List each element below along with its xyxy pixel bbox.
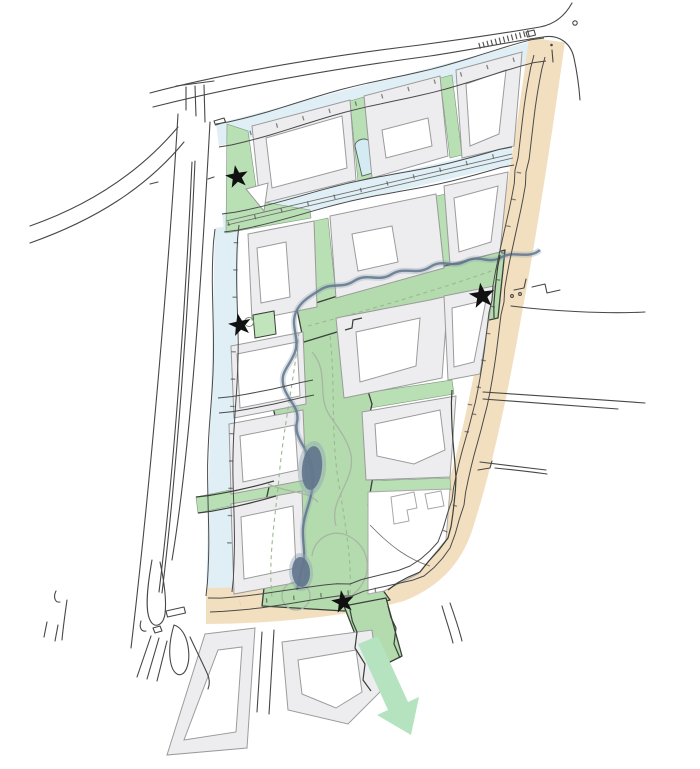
masterplan-map xyxy=(0,0,700,769)
road-diagonal-nw xyxy=(30,142,184,243)
stub-south xyxy=(450,603,462,641)
road-mark xyxy=(55,625,58,641)
road-mark xyxy=(208,177,214,179)
road-bar xyxy=(166,607,186,617)
road-mark xyxy=(62,600,67,640)
stub-east xyxy=(511,306,645,313)
road-gap xyxy=(269,630,274,714)
road-mark xyxy=(44,622,47,637)
stub-diagonal xyxy=(157,641,167,681)
t-intersection xyxy=(204,85,205,122)
stub-south xyxy=(442,606,453,643)
plaza-square xyxy=(253,311,276,338)
stub-diagonal xyxy=(147,638,159,679)
road-mark xyxy=(153,626,162,633)
map-canvas xyxy=(0,0,700,769)
road-mark xyxy=(150,182,158,184)
road-hook xyxy=(140,621,146,631)
culdesac-bulb xyxy=(170,625,189,675)
courtyard xyxy=(241,506,296,579)
small-building xyxy=(425,491,444,509)
road-diagonal-nw xyxy=(30,127,178,226)
road-left-west xyxy=(131,114,178,648)
road-median xyxy=(159,162,192,592)
road-gap xyxy=(257,632,262,712)
road-dot xyxy=(573,21,577,25)
road-median xyxy=(162,161,195,593)
road-mark xyxy=(55,591,60,602)
t-intersection xyxy=(195,86,196,116)
courtyard xyxy=(454,186,498,252)
culdesac-bulb xyxy=(147,560,165,625)
road-dot xyxy=(550,44,553,47)
courtyard xyxy=(257,242,290,303)
